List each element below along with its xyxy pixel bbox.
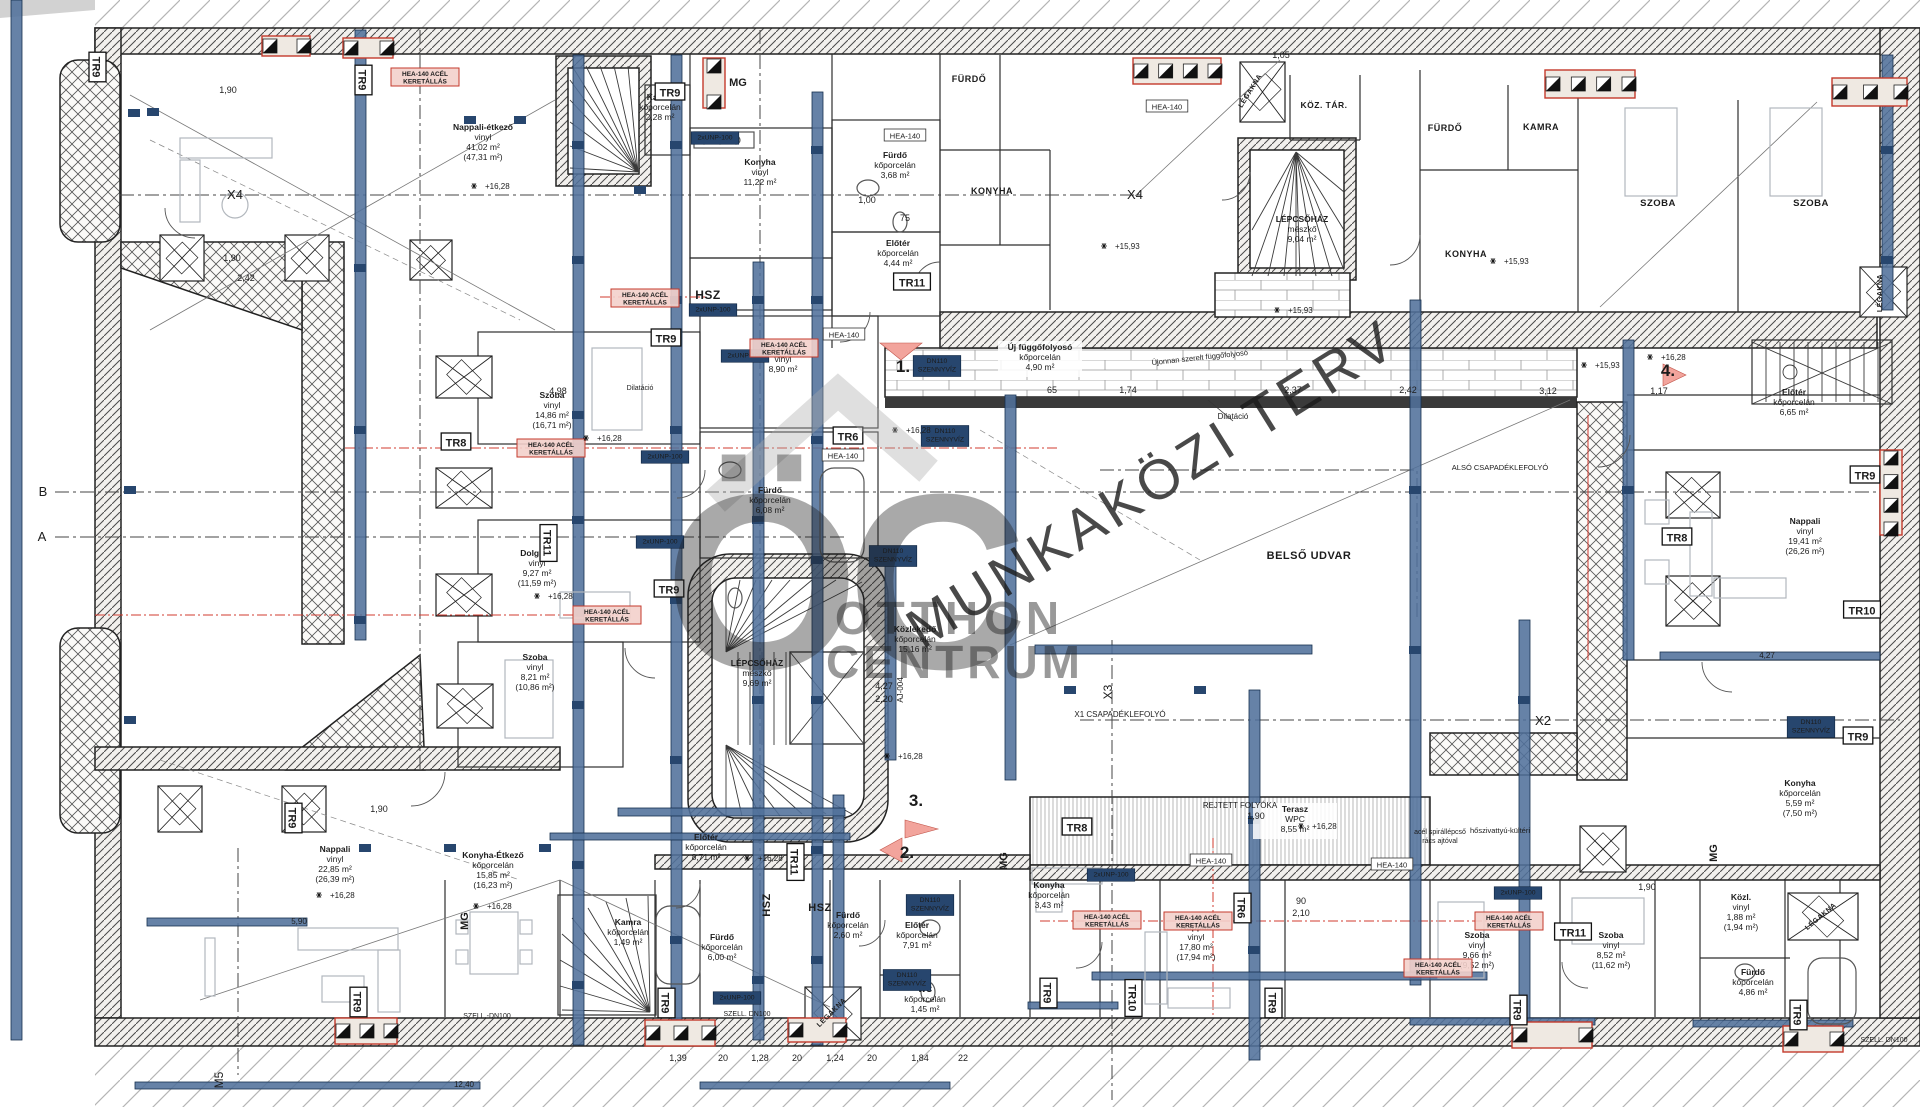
- dimension-label: 20: [718, 1053, 728, 1063]
- dimension-label: 1,90: [1638, 882, 1656, 892]
- vent-grille: [1545, 70, 1636, 98]
- vent-grille: [1512, 1022, 1593, 1048]
- dimension-label: 1,90: [1247, 811, 1265, 821]
- dimension-label: 4,98: [549, 386, 567, 396]
- vent-grille: [645, 1020, 716, 1046]
- svg-text:+16,28: +16,28: [597, 434, 622, 443]
- dimension-label: 5,90: [291, 917, 307, 926]
- steel-tag: HEA-140: [1371, 858, 1413, 870]
- stage-mark: MG: [729, 77, 747, 89]
- svg-text:+15,93: +15,93: [1595, 361, 1620, 370]
- dimension-label: 22: [958, 1053, 968, 1063]
- dimension-label: 1,39: [669, 1053, 687, 1063]
- svg-text:TR9: TR9: [1855, 471, 1876, 483]
- svg-text:Nappalivinyl22,85 m²(26,39 m²): Nappalivinyl22,85 m²(26,39 m²): [315, 844, 354, 884]
- marker-tr9: TR9: [1510, 995, 1527, 1025]
- steel-tag: HEA-140: [884, 129, 926, 141]
- pipe-tag: DN110SZENNYVÍZ: [913, 356, 961, 377]
- vent-grille: [1832, 78, 1908, 106]
- dimension-label: 2,42: [1399, 385, 1417, 395]
- svg-text:TR9: TR9: [1511, 1000, 1523, 1021]
- marker-tr9: TR9: [1850, 466, 1880, 483]
- marker-tr10: TR10: [1125, 980, 1142, 1017]
- svg-text:HEA-140 ACÉLKERETÁLLÁS: HEA-140 ACÉLKERETÁLLÁS: [622, 290, 668, 307]
- stage-mark: 3.: [909, 791, 923, 810]
- pipe-tag: 2xUNP-100: [691, 132, 739, 145]
- svg-text:TR9: TR9: [1266, 993, 1278, 1014]
- svg-text:+16,28: +16,28: [487, 902, 512, 911]
- axis-mark: X2: [1535, 713, 1551, 728]
- marker-tr10: TR10: [1844, 601, 1881, 618]
- steel-frame-tag: HEA-140 ACÉLKERETÁLLÁS: [750, 339, 818, 357]
- marker-tr8: TR8: [1062, 818, 1092, 835]
- svg-text:+16,28: +16,28: [485, 182, 510, 191]
- dimension-label: 2,42: [237, 273, 255, 283]
- marker-tr8: TR8: [1662, 528, 1692, 545]
- shaft-box: [160, 235, 204, 281]
- marker-tr9: TR9: [355, 65, 372, 95]
- steel-tag: HEA-140: [1146, 100, 1188, 112]
- vent-grille: [1880, 450, 1902, 536]
- dimension-label: 20: [792, 1053, 802, 1063]
- shaft-box: [436, 468, 492, 508]
- svg-text:TR8: TR8: [1067, 823, 1088, 835]
- steel-frame-tag: HEA-140 ACÉLKERETÁLLÁS: [517, 439, 585, 457]
- marker-tr9: TR9: [1265, 988, 1282, 1018]
- svg-text:+16,28: +16,28: [330, 891, 355, 900]
- svg-text:TR6: TR6: [1235, 898, 1247, 919]
- marker-tr9: TR9: [1843, 727, 1873, 744]
- svg-text:+15,93: +15,93: [1504, 257, 1529, 266]
- svg-text:HEA-140 ACÉLKERETÁLLÁS: HEA-140 ACÉLKERETÁLLÁS: [1084, 912, 1130, 929]
- svg-text:2xUNP-100: 2xUNP-100: [1093, 871, 1128, 878]
- marker-tr11: TR11: [540, 525, 557, 562]
- svg-text:TR8: TR8: [1667, 533, 1688, 545]
- caps-label: KÖZ. TÁR.: [1301, 100, 1348, 110]
- svg-text:HEA-140 ACÉLKERETÁLLÁS: HEA-140 ACÉLKERETÁLLÁS: [402, 69, 448, 86]
- svg-text:HEA-140: HEA-140: [1377, 861, 1407, 870]
- svg-text:+16,28: +16,28: [548, 592, 573, 601]
- steel-frame-tag: HEA-140 ACÉLKERETÁLLÁS: [611, 289, 679, 307]
- caps-label: FÜRDŐ: [952, 73, 987, 84]
- room-label-nappali-1941: Nappalivinyl19,41 m²(26,26 m²): [1785, 516, 1824, 556]
- marker-tr9: TR9: [655, 83, 685, 100]
- caps-label: KONYHA: [971, 186, 1013, 196]
- dimension-label: 12,40: [454, 1080, 475, 1089]
- svg-text:HEA-140 ACÉLKERETÁLLÁS: HEA-140 ACÉLKERETÁLLÁS: [1175, 913, 1221, 930]
- stage-mark: 1.: [896, 357, 910, 376]
- svg-text:TR9: TR9: [286, 808, 298, 829]
- dimension-label: 1,90: [370, 804, 388, 814]
- svg-text:HEA-140 ACÉLKERETÁLLÁS: HEA-140 ACÉLKERETÁLLÁS: [761, 340, 807, 357]
- pipe-tag: 2xUNP-100: [1087, 869, 1135, 882]
- svg-text:+15,93: +15,93: [1115, 242, 1140, 251]
- dimension-label: 1,28: [751, 1053, 769, 1063]
- steel-frame-tag: HEA-140 ACÉLKERETÁLLÁS: [1475, 912, 1543, 930]
- svg-text:HEA-140: HEA-140: [829, 331, 859, 340]
- steel-frame-tag: HEA-140 ACÉLKERETÁLLÁS: [1404, 959, 1472, 977]
- shaft-box: [1666, 472, 1720, 518]
- dimension-label: 1,24: [826, 1053, 844, 1063]
- svg-text:+16,28: +16,28: [1661, 353, 1686, 362]
- marker-tr11: TR11: [894, 273, 931, 290]
- annotation: Dilatáció: [627, 385, 654, 392]
- marker-tr9: TR9: [350, 987, 367, 1017]
- svg-text:2xUNP-100: 2xUNP-100: [719, 994, 754, 1001]
- stage-mark: 4.: [1661, 361, 1675, 380]
- room-label-nappali-2285: Nappalivinyl22,85 m²(26,39 m²): [315, 844, 354, 884]
- svg-text:TR9: TR9: [90, 57, 102, 78]
- vent-grille: [1133, 58, 1222, 84]
- svg-text:TR9: TR9: [351, 992, 363, 1013]
- svg-text:HEA-140: HEA-140: [1152, 103, 1182, 112]
- axis-mark: X4: [227, 187, 243, 202]
- caps-label: LÉGAKNA: [1875, 274, 1884, 312]
- marker-tr9: TR9: [285, 803, 302, 833]
- axis-mark: A: [38, 529, 47, 544]
- pipe-tag: 2xUNP-100: [713, 992, 761, 1005]
- dimension-label: 2,10: [1292, 908, 1310, 918]
- svg-text:2xUNP-100: 2xUNP-100: [697, 134, 732, 141]
- annotation: ALSÓ CSAPADÉKLEFOLYÓ: [1452, 463, 1549, 472]
- annotation: rács ajtóval: [1422, 838, 1458, 845]
- steel-frame-tag: HEA-140 ACÉLKERETÁLLÁS: [391, 68, 459, 86]
- svg-text:HEA-140: HEA-140: [890, 132, 920, 141]
- dimension-label: 1,17: [1650, 386, 1668, 396]
- steel-frame-tag: HEA-140 ACÉLKERETÁLLÁS: [1164, 912, 1232, 930]
- stage-mark: MG: [1708, 844, 1720, 862]
- shaft-box: [436, 574, 492, 616]
- dimension-label: 1,90: [223, 253, 241, 263]
- svg-text:+15,93: +15,93: [1288, 306, 1313, 315]
- pipe-tag: DN110SZENNYVÍZ: [883, 970, 931, 991]
- axis-mark: X4: [1127, 187, 1143, 202]
- marker-tr6: TR6: [1234, 893, 1251, 923]
- svg-text:TR10: TR10: [1126, 985, 1138, 1012]
- vent-grille: [343, 38, 394, 58]
- stage-mark: 2.: [900, 843, 914, 862]
- steel-tag: HEA-140: [1190, 854, 1232, 866]
- dimension-label: 1,90: [219, 85, 237, 95]
- dimension-label: 4,27: [1759, 651, 1775, 660]
- shaft-box: [437, 684, 493, 728]
- caps-label: HSZ: [695, 288, 721, 302]
- dimension-label: 1,74: [1119, 385, 1137, 395]
- shaft-box: [1580, 826, 1626, 872]
- pipe-tag: DN110SZENNYVÍZ: [1787, 717, 1835, 738]
- axis-mark: B: [39, 484, 48, 499]
- svg-text:TR9: TR9: [356, 70, 368, 91]
- caps-label: KONYHA: [1445, 249, 1487, 259]
- steel-tag: HEA-140: [823, 328, 865, 340]
- annotation: acél spirállépcső: [1414, 829, 1466, 836]
- svg-text:TR11: TR11: [788, 849, 800, 875]
- svg-text:HEA-140 ACÉLKERETÁLLÁS: HEA-140 ACÉLKERETÁLLÁS: [1486, 913, 1532, 930]
- svg-text:TR11: TR11: [899, 278, 925, 290]
- annotation: hőszivattyú-kültéri: [1470, 826, 1530, 835]
- svg-text:+16,28: +16,28: [906, 426, 931, 435]
- svg-text:Nappalivinyl19,41 m²(26,26 m²): Nappalivinyl19,41 m²(26,26 m²): [1785, 516, 1824, 556]
- vent-grille: [262, 36, 311, 56]
- stage-mark: MG: [459, 912, 471, 930]
- annotation: SZELL. DN100: [723, 1011, 770, 1018]
- svg-text:2xUNP-100: 2xUNP-100: [1500, 889, 1535, 896]
- svg-text:TR11: TR11: [541, 530, 553, 556]
- vent-grille: [703, 58, 725, 109]
- svg-text:TR9: TR9: [660, 88, 681, 100]
- pipe-tag: 2xUNP-100: [689, 304, 737, 317]
- svg-text:TR10: TR10: [1849, 606, 1876, 618]
- dimension-label: 1,00: [858, 195, 876, 205]
- shaft-box: [436, 356, 492, 398]
- caps-label: HSZ: [761, 893, 773, 917]
- dimension-label: 65: [1047, 385, 1057, 395]
- axis-mark: X1 CSAPADÉKLEFOLYÓ: [1074, 710, 1165, 719]
- marker-tr9: TR9: [651, 329, 681, 346]
- svg-text:TR9: TR9: [656, 334, 677, 346]
- dimension-label: 20: [867, 1053, 877, 1063]
- svg-text:TR9: TR9: [1041, 983, 1053, 1004]
- pipe-tag: 2xUNP-100: [1494, 887, 1542, 900]
- caps-label: HSZ: [808, 902, 832, 914]
- annotation: SZELL. DN100: [1860, 1037, 1907, 1044]
- svg-text:+16,28: +16,28: [758, 854, 783, 863]
- dimension-label: 1,05: [1272, 50, 1290, 60]
- marker-tr11: TR11: [1555, 923, 1592, 940]
- svg-text:+16,28: +16,28: [898, 752, 923, 761]
- svg-text:TR9: TR9: [1848, 732, 1869, 744]
- annotation: SZELL.-DN100: [463, 1013, 511, 1020]
- shaft-box: [285, 235, 329, 281]
- stage-mark: MG: [998, 852, 1010, 870]
- marker-tr8: TR8: [441, 433, 471, 450]
- steel-frame-tag: HEA-140 ACÉLKERETÁLLÁS: [1073, 911, 1141, 929]
- svg-text:2xUNP-100: 2xUNP-100: [695, 306, 730, 313]
- floor-plan-drawing: MUNKAKÖZI TERV: [0, 0, 1920, 1107]
- dimension-label: 75: [900, 213, 910, 223]
- bay-window-top: [60, 60, 120, 242]
- vent-grille: [335, 1018, 398, 1044]
- dimension-label: 90: [1296, 896, 1306, 906]
- shaft-box: [158, 786, 202, 832]
- svg-text:TR9: TR9: [1791, 1005, 1803, 1026]
- dimension-label: 1,84: [911, 1053, 929, 1063]
- marker-tr9: TR9: [658, 988, 675, 1018]
- marker-tr11: TR11: [787, 844, 804, 881]
- svg-text:HEA-140 ACÉLKERETÁLLÁS: HEA-140 ACÉLKERETÁLLÁS: [528, 440, 574, 457]
- svg-text:HEA-140: HEA-140: [1196, 857, 1226, 866]
- shaft-box: [410, 240, 452, 280]
- svg-text:TR8: TR8: [446, 438, 467, 450]
- marker-tr9: TR9: [1790, 1000, 1807, 1030]
- axis-mark: M5: [212, 1071, 226, 1088]
- svg-text:TR11: TR11: [1560, 928, 1586, 940]
- caps-label: KAMRA: [1523, 122, 1559, 132]
- axis-mark: X3: [1101, 684, 1115, 699]
- watermark-brand-2: CENTRUM: [826, 636, 1084, 688]
- caps-label: BELSŐ UDVAR: [1267, 549, 1352, 562]
- svg-text:TR9: TR9: [659, 993, 671, 1014]
- marker-tr9: TR9: [1040, 978, 1057, 1008]
- annotation: REJTETT FOLYÓKA: [1203, 801, 1278, 810]
- marker-tr9: TR9: [89, 52, 106, 82]
- caps-label: FÜRDŐ: [1428, 122, 1463, 133]
- steel-frame-tag: HEA-140 ACÉLKERETÁLLÁS: [573, 606, 641, 624]
- room-label-uj-fuggofolyoso: Új függőfolyosókőporcelán4,90 m²: [998, 341, 1082, 377]
- pipe-tag: DN110SZENNYVÍZ: [906, 895, 954, 916]
- svg-text:+16,28: +16,28: [1312, 822, 1337, 831]
- svg-text:HEA-140 ACÉLKERETÁLLÁS: HEA-140 ACÉLKERETÁLLÁS: [584, 607, 630, 624]
- svg-text:HEA-140 ACÉLKERETÁLLÁS: HEA-140 ACÉLKERETÁLLÁS: [1415, 960, 1461, 977]
- caps-label: SZOBA: [1793, 198, 1829, 209]
- bay-window-bottom: [60, 628, 120, 833]
- caps-label: SZOBA: [1640, 198, 1676, 209]
- dimension-label: 3,12: [1539, 386, 1557, 396]
